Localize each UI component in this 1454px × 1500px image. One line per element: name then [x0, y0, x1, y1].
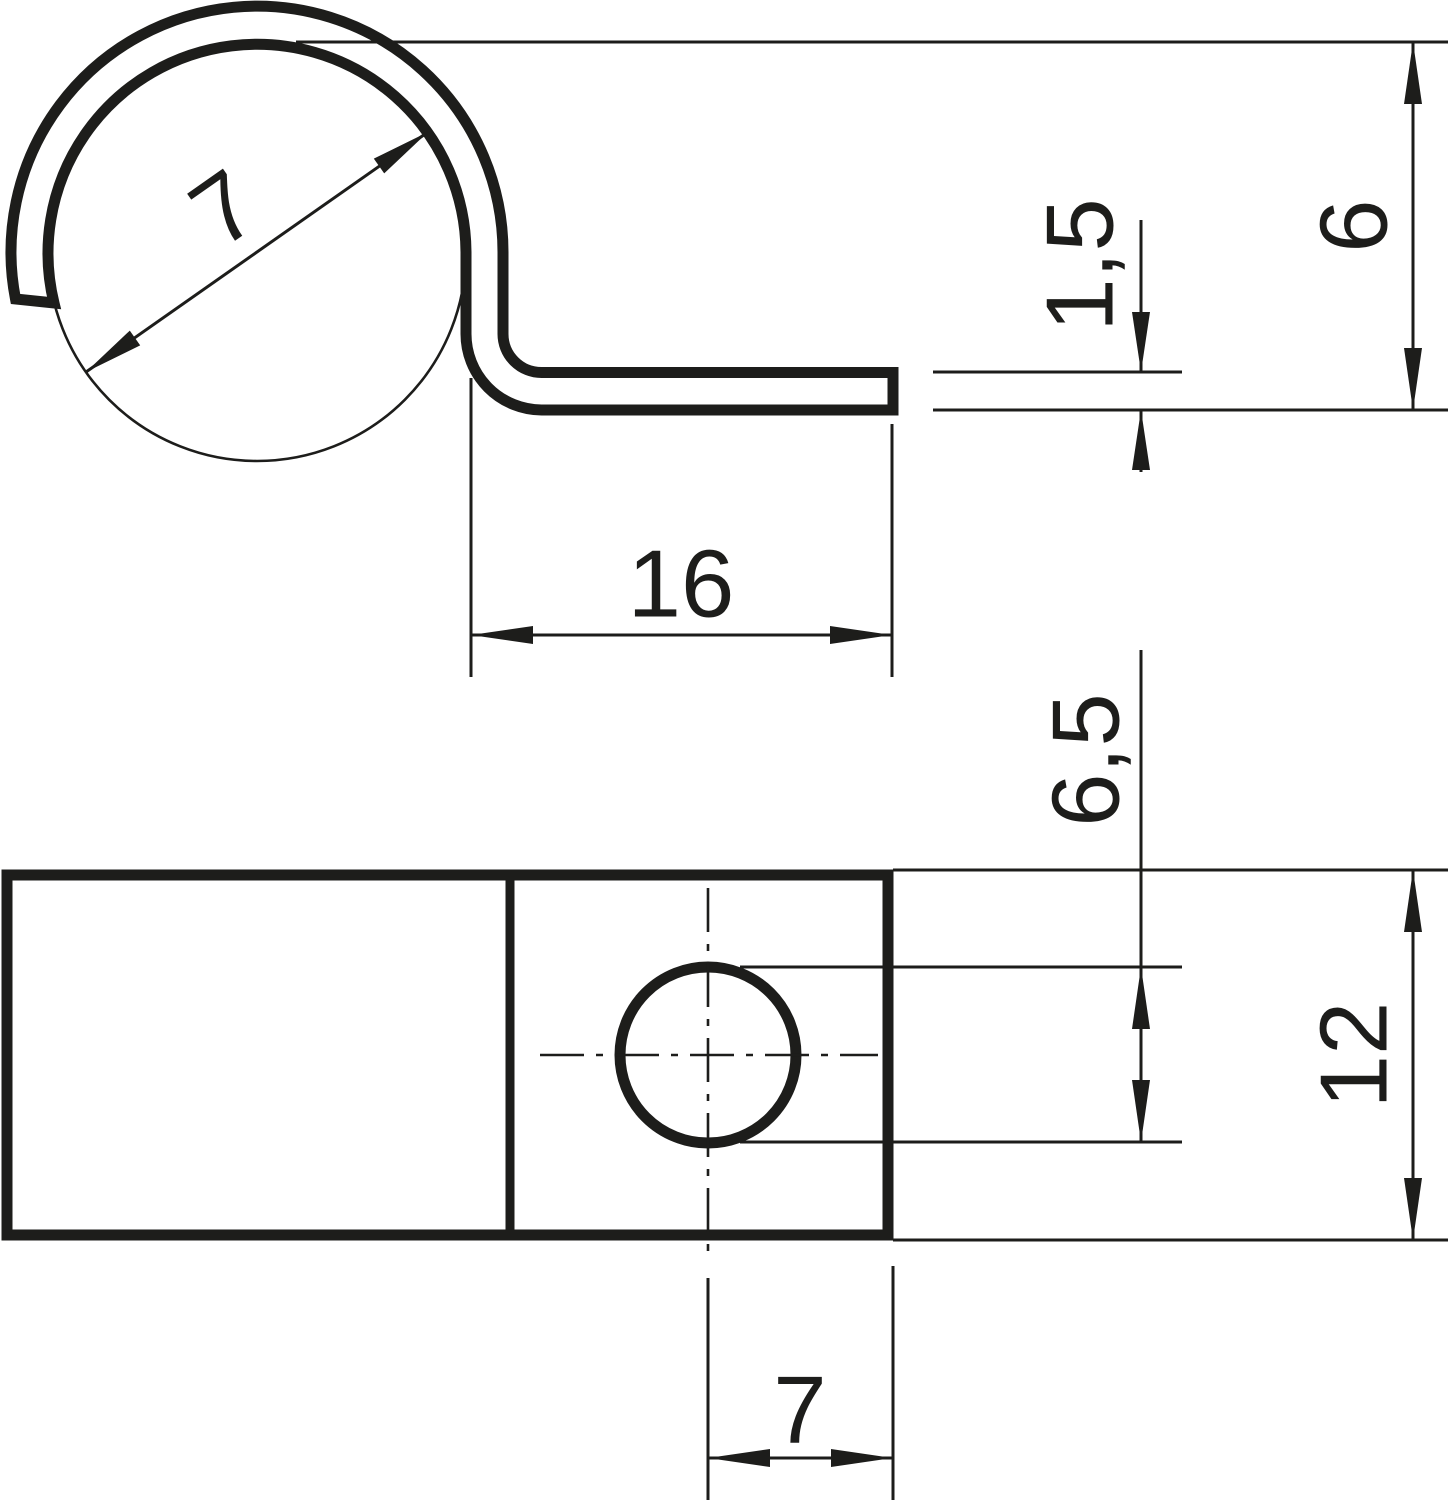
dimension-hole-center-offset: 7	[708, 1266, 893, 1500]
plan-view: 6,5 12 7	[7, 650, 1448, 1500]
arrowhead-down	[1132, 312, 1150, 372]
dimension-cable-diameter: 7	[86, 132, 428, 372]
diameter-dimension-line	[86, 132, 428, 372]
clip-dimension-drawing: 7 1,5 6	[0, 0, 1454, 1500]
arrowhead-down	[1404, 348, 1422, 410]
arrowhead-down	[1404, 1178, 1422, 1240]
arrowhead-up	[1132, 410, 1150, 470]
dimension-clip-width: 12	[1301, 870, 1422, 1240]
dimension-tab-length: 16	[471, 378, 892, 677]
dim-label-hole-center-offset: 7	[773, 1357, 826, 1464]
clip-body-outline	[7, 875, 888, 1235]
arrowhead-up	[1404, 42, 1422, 104]
arrowhead-down	[1132, 1080, 1150, 1142]
arrowhead-up-right	[374, 132, 428, 173]
dimension-material-thickness: 1,5	[1027, 198, 1150, 472]
arrowhead-up	[1404, 870, 1422, 932]
side-profile-view: 7 1,5 6	[11, 6, 1448, 677]
dim-label-hole-diameter: 6,5	[1033, 693, 1140, 826]
dimension-overall-height: 6	[1301, 42, 1422, 410]
dim-label-material-thickness: 1,5	[1027, 198, 1134, 331]
arrowhead-right	[830, 626, 892, 644]
arrowhead-up	[1132, 967, 1150, 1029]
arrowhead-down-left	[86, 331, 140, 372]
arrowhead-left	[471, 626, 533, 644]
dimension-hole-diameter: 6,5	[1033, 650, 1150, 1142]
dim-label-overall-height: 6	[1301, 199, 1408, 252]
technical-drawing-canvas: 7 1,5 6	[0, 0, 1454, 1500]
dim-label-tab-length: 16	[628, 531, 735, 638]
arrowhead-right	[831, 1449, 893, 1467]
dim-label-clip-width: 12	[1301, 1002, 1408, 1109]
clip-profile-outline	[11, 6, 893, 410]
arrowhead-left	[708, 1449, 770, 1467]
